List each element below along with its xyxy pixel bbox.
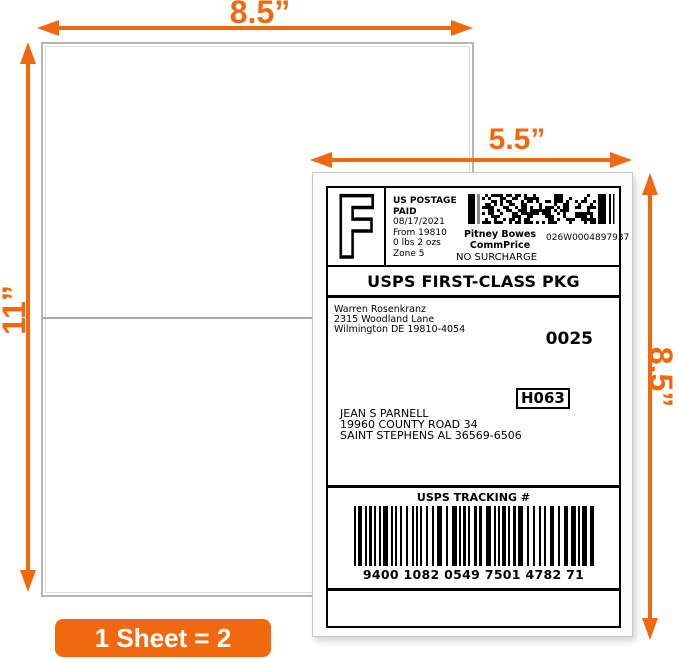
sender-address: Warren Rosenkranz 2315 Woodland Lane Wil… bbox=[334, 305, 465, 335]
meter-provider-line: Pitney Bowes bbox=[462, 229, 538, 240]
address-section: Warren Rosenkranz 2315 Woodland Lane Wil… bbox=[328, 301, 619, 485]
sheet-height-label: 11” bbox=[0, 265, 32, 355]
label-width-label: 5.5” bbox=[472, 122, 562, 158]
batch-number: 0025 bbox=[546, 329, 593, 349]
meter-provider: Pitney Bowes CommPrice bbox=[462, 229, 538, 251]
tracking-barcode-icon bbox=[354, 506, 594, 566]
service-class-header: USPS FIRST-CLASS PKG bbox=[328, 269, 619, 298]
sheet-count-badge: 1 Sheet = 2 Labels bbox=[55, 619, 271, 657]
shipping-label-content: F US POSTAGE PAID 08/17/2021 From 19810 … bbox=[326, 186, 621, 628]
postage-class-letter: F bbox=[335, 192, 378, 262]
arrow-right-head-icon bbox=[610, 152, 632, 168]
postage-section: F US POSTAGE PAID 08/17/2021 From 19810 … bbox=[328, 188, 619, 267]
arrow-right-head-icon bbox=[451, 20, 473, 36]
arrow-shaft bbox=[324, 158, 618, 162]
surcharge-note: NO SURCHARGE bbox=[456, 252, 537, 263]
shipping-label: F US POSTAGE PAID 08/17/2021 From 19810 … bbox=[312, 172, 633, 637]
recipient-city-state-zip: SAINT STEPHENS AL 36569-6506 bbox=[340, 430, 522, 441]
postage-details: US POSTAGE PAID 08/17/2021 From 19810 0 … bbox=[393, 196, 457, 259]
tracking-number: 9400 1082 0549 7501 4782 71 bbox=[328, 567, 619, 582]
sort-code-box: H063 bbox=[516, 388, 570, 409]
postage-zone: Zone 5 bbox=[393, 249, 457, 260]
arrow-down-head-icon bbox=[642, 618, 658, 640]
label-width-arrow-icon bbox=[310, 152, 632, 168]
arrow-down-head-icon bbox=[20, 570, 36, 592]
meter-barcode-icon bbox=[468, 194, 616, 224]
sender-city-state-zip: Wilmington DE 19810-4054 bbox=[334, 325, 465, 335]
product-diagram: 8.5” 11” 5.5” 8.5” F US POST bbox=[0, 0, 679, 659]
label-height-label: 8.5” bbox=[643, 332, 679, 422]
meter-number: 026W0004897937 bbox=[546, 233, 629, 243]
tracking-header: USPS TRACKING # bbox=[328, 491, 619, 504]
postage-weight: 0 lbs 2 ozs bbox=[393, 238, 457, 249]
meter-provider-line: CommPrice bbox=[462, 240, 538, 251]
postage-date: 08/17/2021 bbox=[393, 217, 457, 228]
sheet-width-label: 8.5” bbox=[160, 0, 360, 30]
postage-class-cell: F bbox=[328, 188, 386, 265]
recipient-address: JEAN S PARNELL 19960 COUNTY ROAD 34 SAIN… bbox=[340, 408, 522, 441]
tracking-section: USPS TRACKING # 9400 1082 0549 7501 4782… bbox=[328, 485, 619, 591]
postage-line: US POSTAGE bbox=[393, 196, 457, 207]
postage-line: PAID bbox=[393, 207, 457, 218]
postage-from-zip: From 19810 bbox=[393, 228, 457, 239]
postage-class-letter-icon: F bbox=[334, 192, 380, 262]
